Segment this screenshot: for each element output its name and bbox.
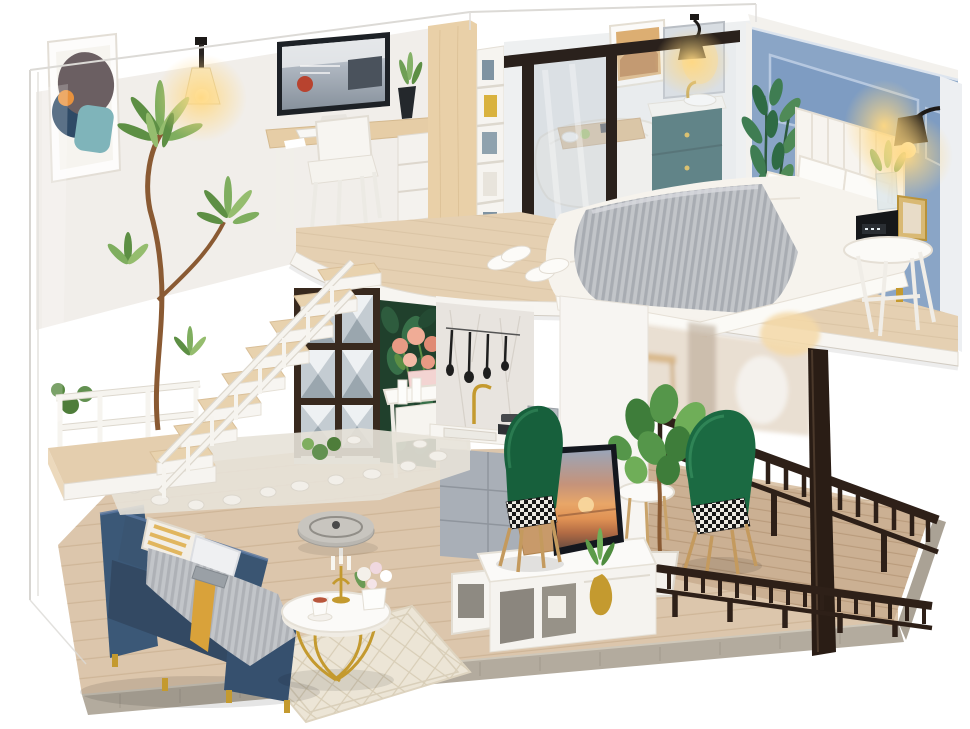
chair-shell (504, 406, 563, 513)
tree-trunk (658, 470, 660, 552)
gold-bed-foot (896, 288, 903, 302)
shelf-item-jar (484, 95, 497, 117)
pebble (328, 475, 344, 485)
robot-vacuum (298, 511, 378, 556)
cup-coffee (313, 597, 327, 603)
screen-dark-shape (348, 56, 382, 90)
flower (357, 567, 371, 581)
console-opening (500, 588, 534, 644)
pebble (413, 440, 427, 448)
shelf-item-box (482, 60, 494, 80)
gold-sofa-foot (226, 690, 232, 703)
tv-sun (578, 497, 594, 513)
rose (403, 353, 417, 367)
rose (421, 355, 435, 369)
utensil-head (501, 361, 509, 371)
sconce-bracket (195, 37, 207, 45)
candelabra-base (332, 597, 350, 604)
rose (407, 327, 425, 345)
pebble (347, 436, 361, 444)
vacuum-button (332, 521, 340, 529)
candle (331, 556, 335, 570)
pebble (363, 469, 381, 479)
shelf-item-books (482, 132, 497, 154)
gold-sofa-foot (162, 678, 168, 691)
sconce-bracket (690, 14, 699, 20)
console-card (398, 380, 407, 404)
shrub-leaf (327, 437, 341, 451)
flower-vase (362, 588, 386, 610)
lamp-glow (155, 54, 247, 142)
console-item (548, 596, 566, 618)
shrub-leaf (312, 444, 328, 460)
leaf-cluster (172, 326, 208, 357)
dollhouse-scene (0, 0, 970, 729)
chair-shadow (496, 556, 564, 572)
shrub-leaf (302, 438, 314, 450)
rose (392, 338, 408, 354)
pebble (429, 451, 447, 461)
pebble (400, 461, 416, 471)
flower (380, 570, 392, 582)
cube-slot (458, 584, 484, 618)
shelf-item-vase (483, 172, 497, 196)
blurred-chair (736, 356, 788, 424)
photo (903, 202, 921, 234)
flower (367, 579, 377, 589)
grid-bar (294, 398, 380, 405)
utensil-head (483, 367, 491, 379)
vase-sprout-leaf (597, 528, 603, 560)
candle (347, 556, 351, 570)
flower (370, 562, 382, 574)
art-teal-blob (73, 104, 115, 155)
gold-sofa-foot (112, 654, 118, 667)
gold-sofa-foot (284, 700, 290, 713)
pebble (223, 495, 241, 505)
frame-post (606, 45, 617, 216)
pebble (291, 481, 309, 491)
right-wall-edge (940, 76, 962, 352)
glass-glare (42, 84, 68, 430)
utensil-head (446, 364, 454, 376)
screen-red-flower (297, 76, 313, 92)
frame-post (522, 60, 534, 236)
lamp-glow (844, 80, 924, 172)
product-photo-dollhouse (0, 0, 970, 729)
pebble (151, 495, 169, 505)
console-card (412, 378, 421, 402)
utensil-head (464, 371, 474, 383)
pebble (260, 487, 276, 497)
pebble (188, 500, 204, 510)
lamp-glow (654, 28, 730, 96)
